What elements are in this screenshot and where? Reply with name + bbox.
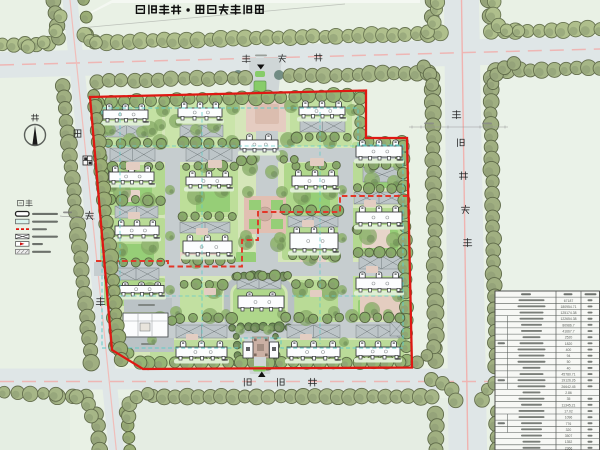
svg-text:80986.7: 80986.7	[562, 323, 574, 327]
svg-text:776: 776	[566, 422, 572, 426]
svg-text:180954.71: 180954.71	[560, 305, 576, 309]
svg-text:2366: 2366	[565, 446, 573, 450]
svg-text:45780.71: 45780.71	[561, 373, 575, 377]
svg-text:400: 400	[566, 348, 572, 352]
svg-text:2520: 2520	[565, 336, 573, 340]
svg-text:1352: 1352	[565, 440, 573, 444]
svg-text:41667.7: 41667.7	[562, 330, 574, 334]
svg-text:35: 35	[567, 397, 571, 401]
svg-text:11345.21: 11345.21	[562, 403, 576, 407]
svg-text:50: 50	[567, 360, 571, 364]
svg-text:122654.38: 122654.38	[560, 317, 576, 321]
svg-text:40: 40	[567, 366, 571, 370]
svg-text:94: 94	[567, 354, 571, 358]
svg-text:2.86: 2.86	[565, 391, 572, 395]
svg-text:1820: 1820	[565, 342, 573, 346]
svg-text:67187: 67187	[564, 299, 574, 303]
svg-text:17.02: 17.02	[564, 410, 573, 414]
svg-text:320: 320	[566, 428, 572, 432]
svg-text:125174.38: 125174.38	[560, 311, 576, 315]
svg-text:19126.26: 19126.26	[561, 379, 575, 383]
svg-text:3507: 3507	[565, 434, 573, 438]
svg-text:26642.45: 26642.45	[561, 385, 575, 389]
svg-text:1096: 1096	[565, 416, 573, 420]
